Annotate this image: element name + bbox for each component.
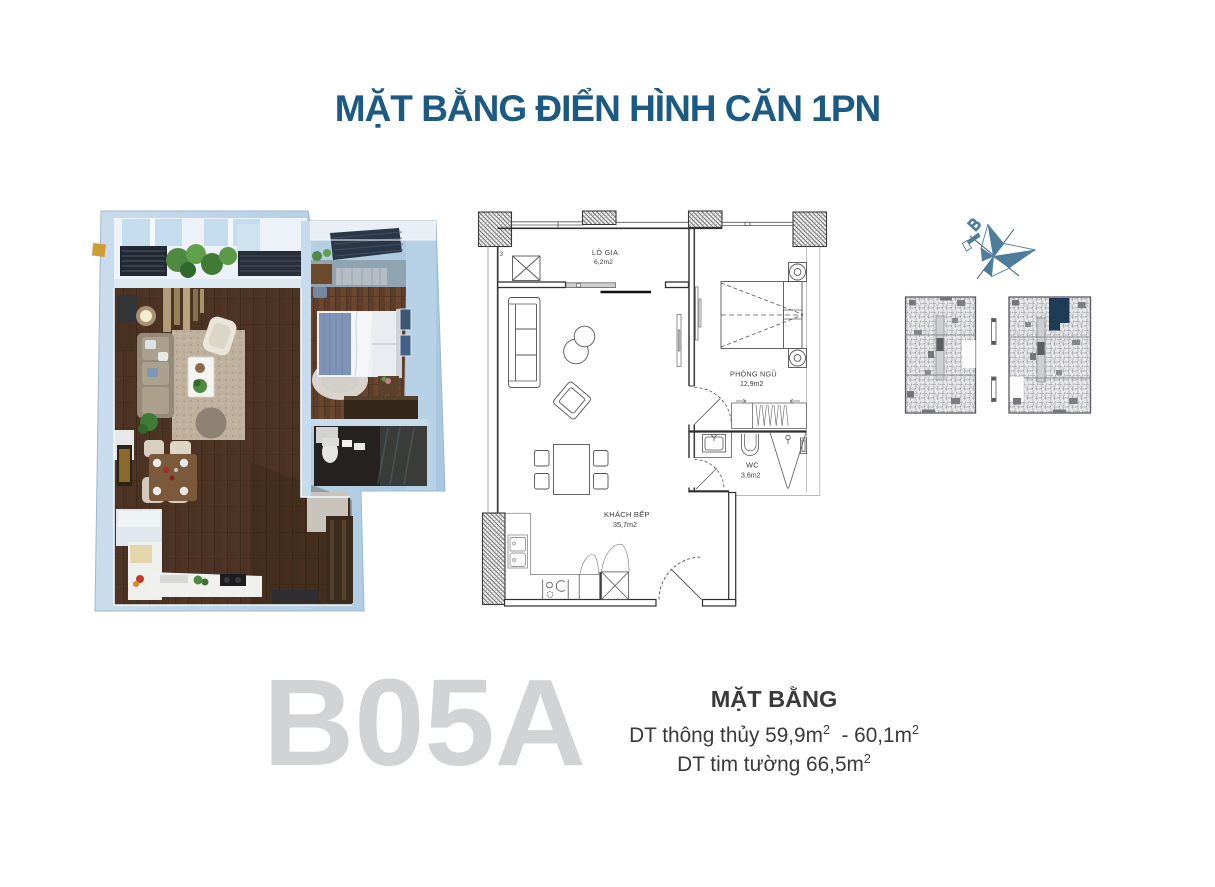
svg-text:3: 3 (500, 251, 504, 258)
svg-text:6,2m2: 6,2m2 (594, 259, 613, 266)
svg-text:35,7m2: 35,7m2 (613, 520, 637, 529)
svg-text:12,9m2: 12,9m2 (740, 381, 763, 388)
svg-text:KHÁCH BẾP: KHÁCH BẾP (604, 509, 650, 519)
svg-text:LÔ GIA: LÔ GIA (592, 248, 618, 257)
svg-text:3,6m2: 3,6m2 (741, 473, 761, 480)
svg-text:PHÒNG NGỦ: PHÒNG NGỦ (730, 370, 777, 379)
svg-text:WC: WC (746, 461, 759, 470)
